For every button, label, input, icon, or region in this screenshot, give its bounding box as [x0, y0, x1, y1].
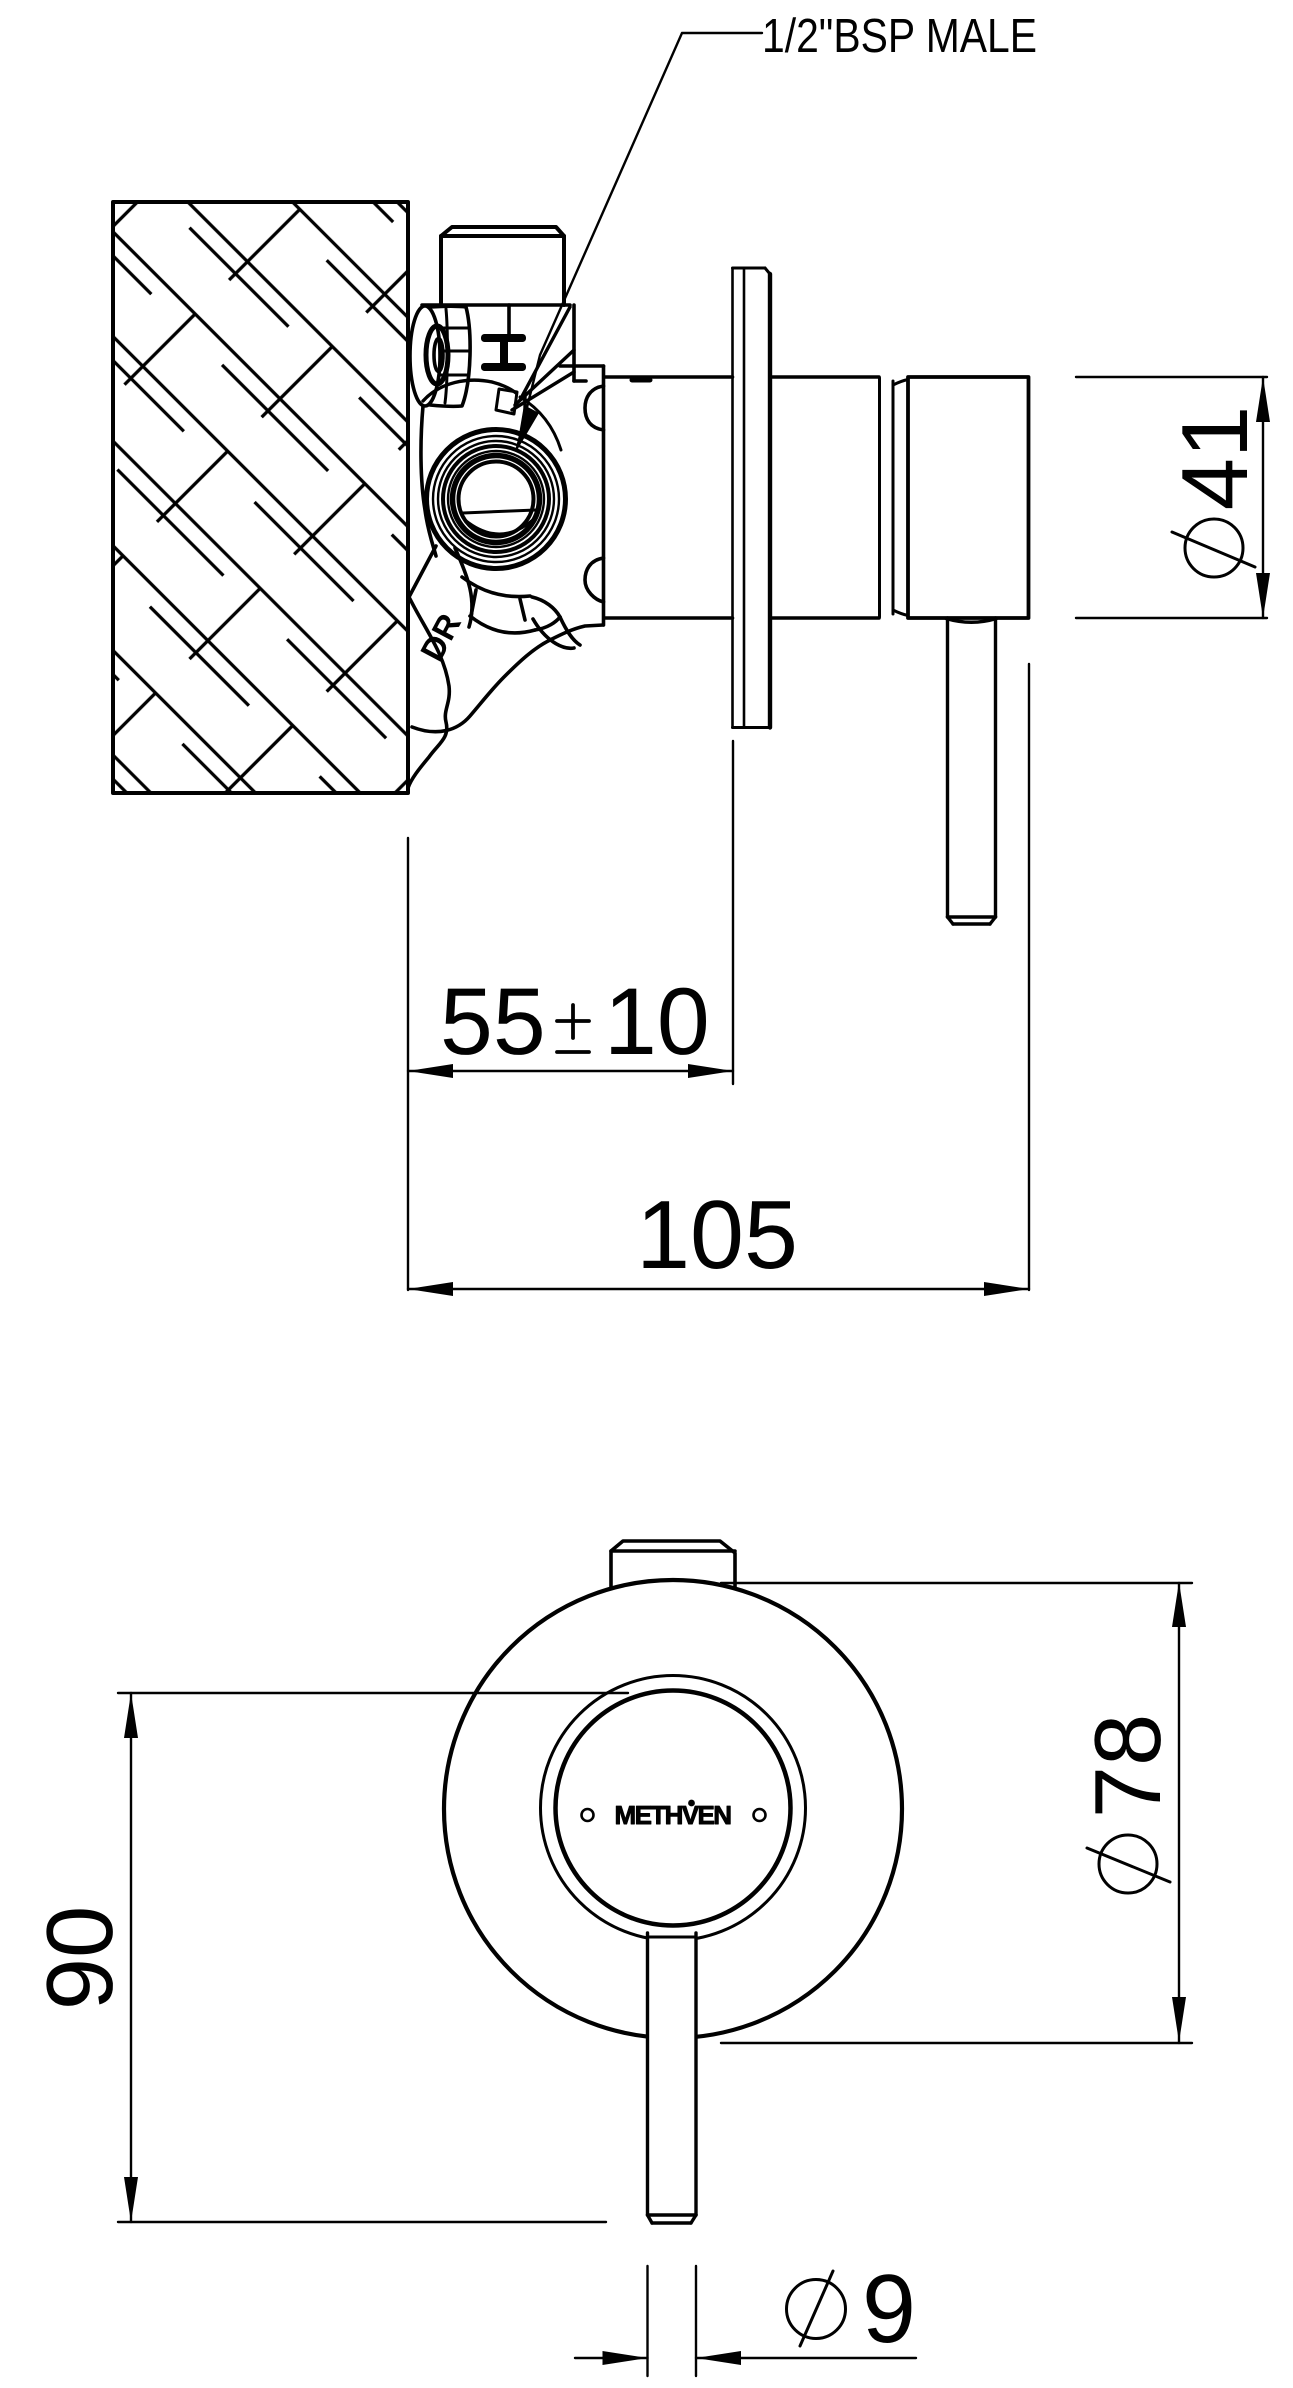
svg-text:90: 90	[27, 1906, 132, 2011]
svg-text:10: 10	[604, 969, 710, 1075]
svg-text:1/2"BSP MALE: 1/2"BSP MALE	[762, 10, 1037, 63]
svg-text:78: 78	[1075, 1714, 1180, 1819]
svg-text:55: 55	[440, 969, 546, 1075]
svg-text:METHVEN: METHVEN	[615, 1800, 732, 1830]
svg-text:41: 41	[1162, 406, 1267, 511]
svg-text:9: 9	[862, 2254, 916, 2363]
svg-text:105: 105	[636, 1180, 798, 1289]
